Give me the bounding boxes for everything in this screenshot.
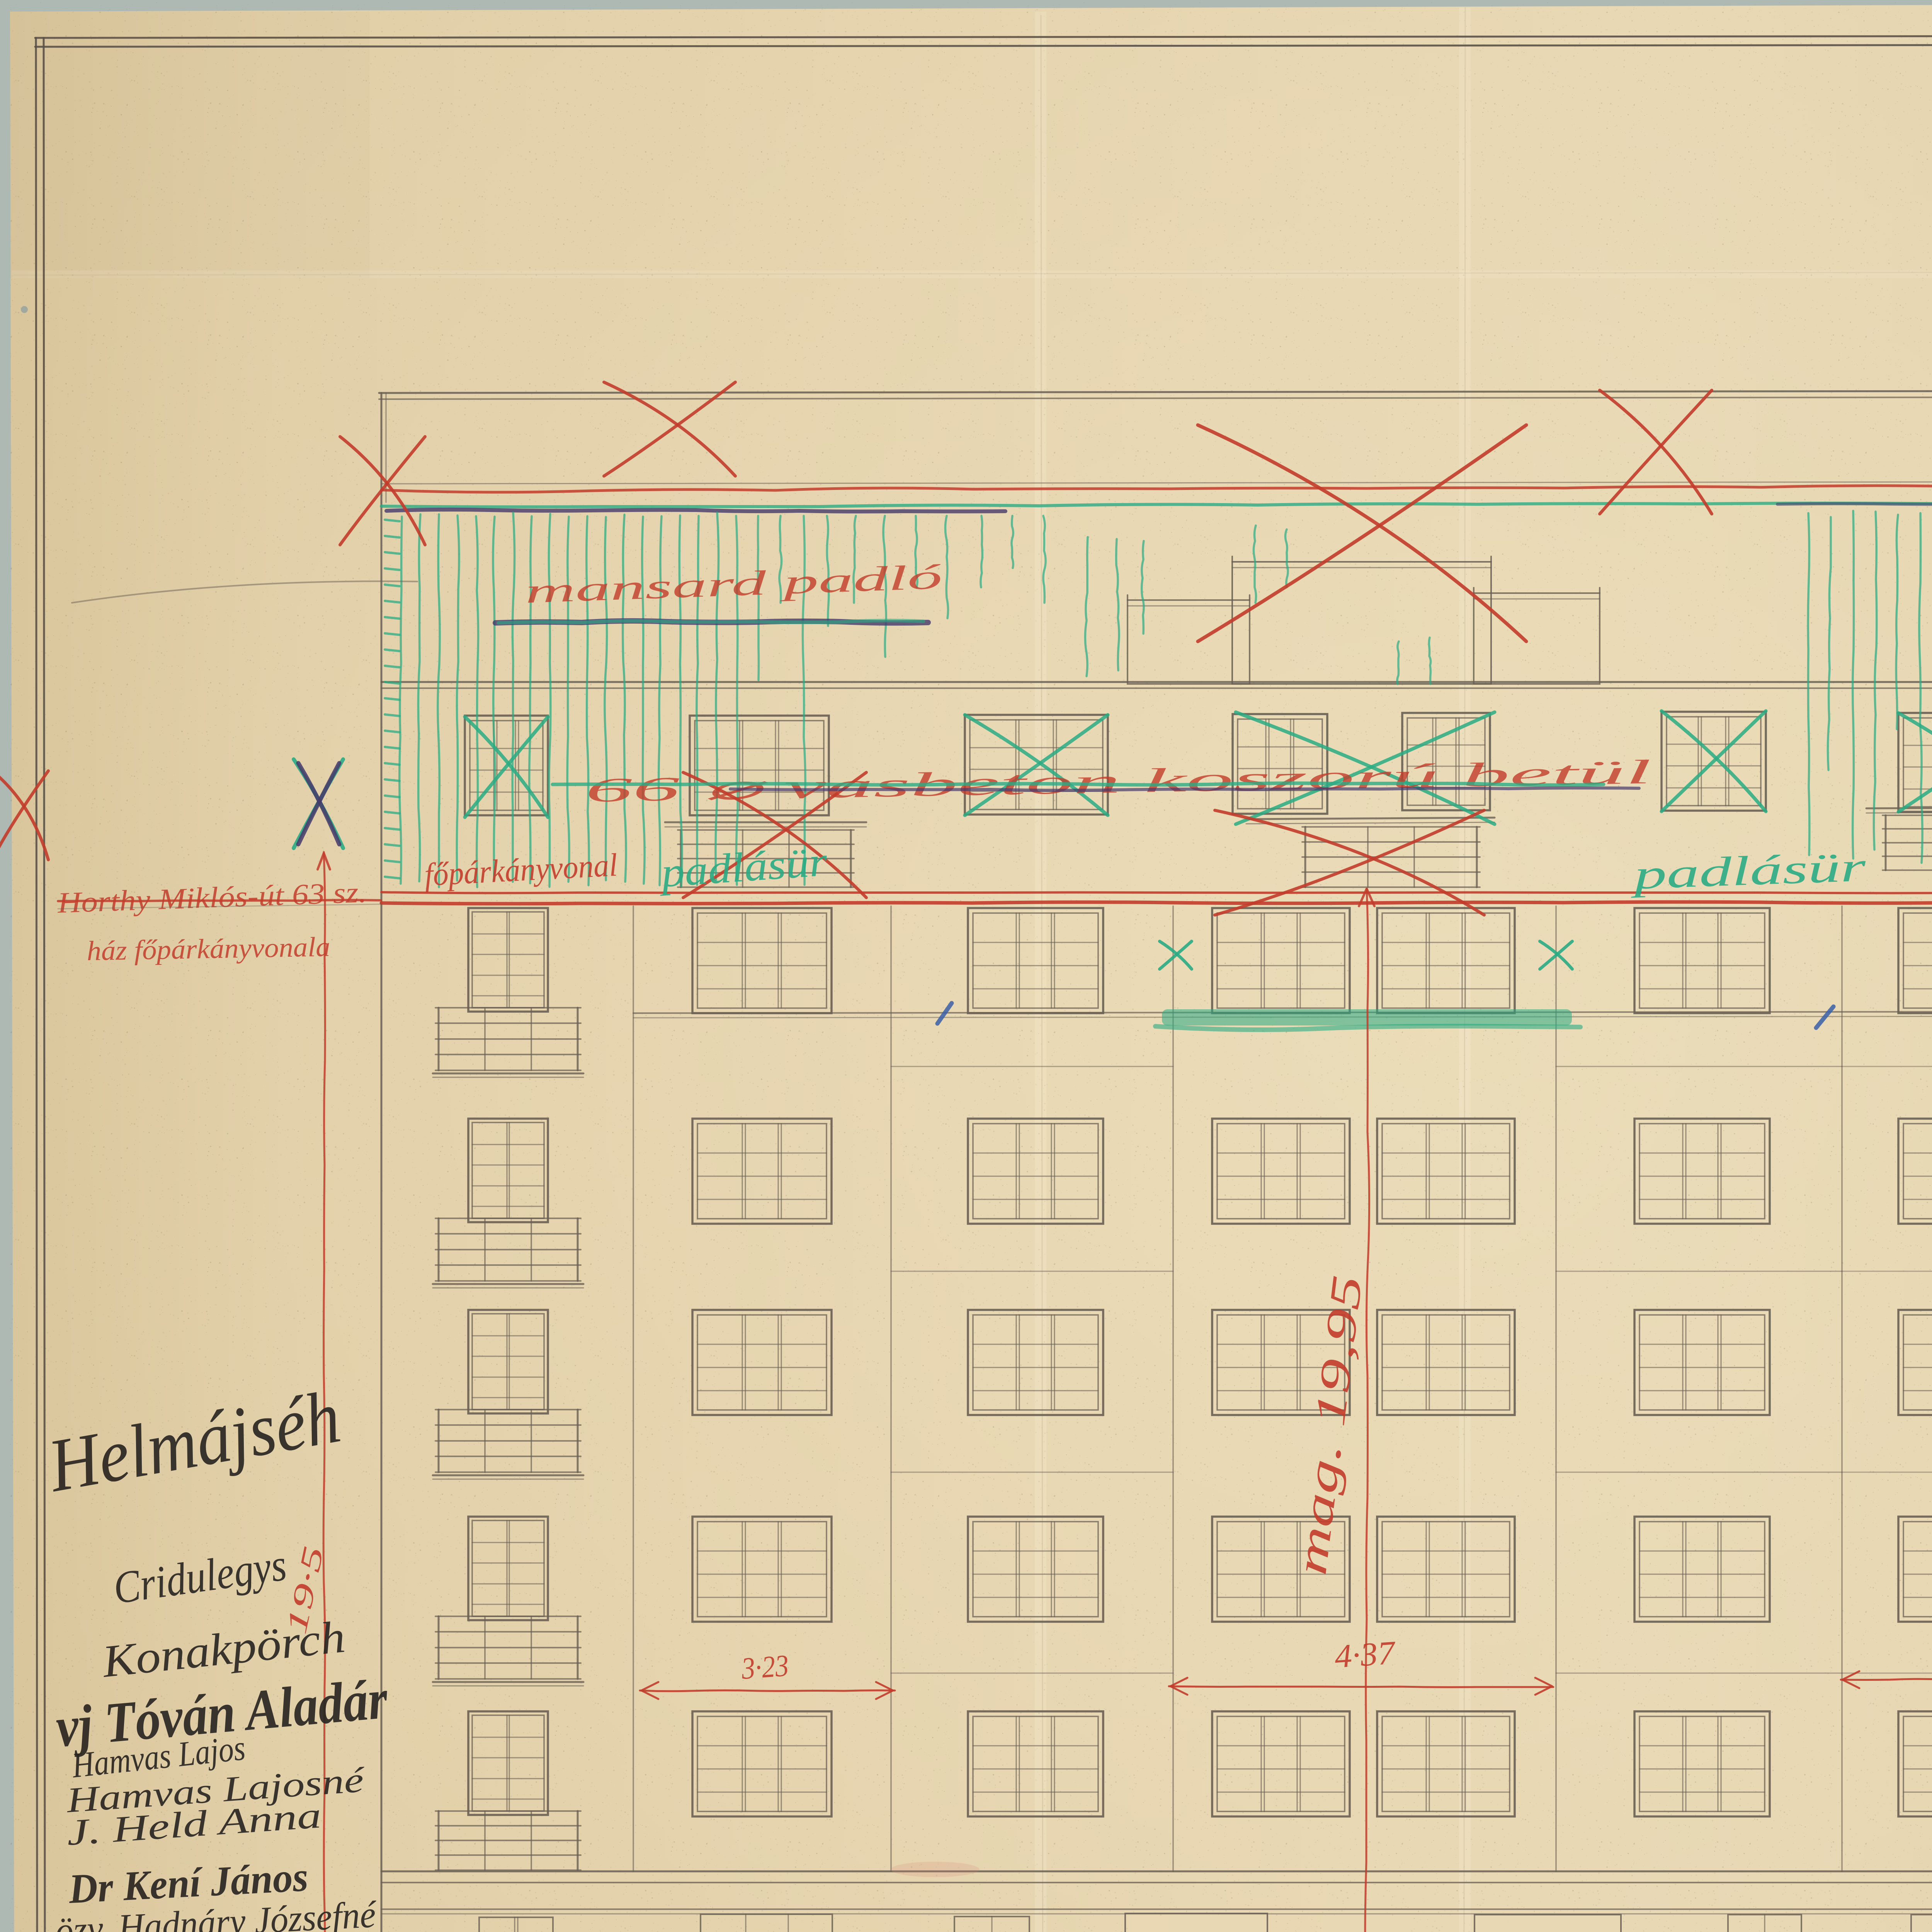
svg-text:padlásür: padlásür: [1629, 844, 1867, 898]
svg-text:ház főpárkányvonala: ház főpárkányvonala: [87, 931, 330, 966]
svg-text:4·37: 4·37: [1333, 1634, 1397, 1675]
svg-text:3·23: 3·23: [740, 1649, 790, 1686]
